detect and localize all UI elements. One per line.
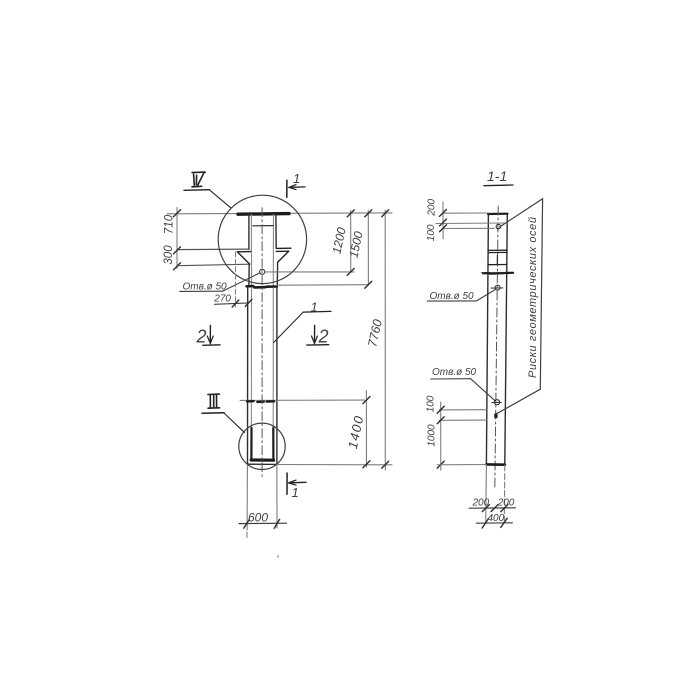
svg-text:1400: 1400 — [345, 414, 367, 450]
svg-text:Отв.ø 50: Отв.ø 50 — [430, 291, 475, 302]
svg-text:2: 2 — [318, 327, 329, 347]
svg-text:200: 200 — [472, 497, 490, 508]
svg-text:Риски геометрических осей: Риски геометрических осей — [527, 217, 539, 378]
svg-text:1500: 1500 — [346, 230, 365, 259]
svg-text:100: 100 — [426, 395, 437, 412]
svg-text:1: 1 — [292, 485, 299, 500]
svg-text:Отв.ø 50: Отв.ø 50 — [432, 367, 477, 378]
svg-text:400: 400 — [488, 513, 505, 524]
svg-text:200: 200 — [497, 497, 515, 508]
svg-text:Отв.ø 50: Отв.ø 50 — [183, 281, 228, 292]
svg-text:710: 710 — [164, 214, 176, 234]
svg-text:1: 1 — [293, 171, 300, 186]
svg-text:100: 100 — [426, 224, 437, 241]
svg-text:600: 600 — [248, 510, 268, 524]
svg-text:2: 2 — [196, 327, 207, 347]
svg-text:7760: 7760 — [365, 318, 384, 348]
svg-text:1-1: 1-1 — [487, 168, 507, 184]
svg-text:1000: 1000 — [427, 424, 438, 447]
svg-text:200: 200 — [427, 199, 438, 217]
svg-text:1200: 1200 — [329, 226, 348, 255]
svg-text:270: 270 — [213, 293, 231, 304]
svg-text:300: 300 — [163, 245, 175, 265]
